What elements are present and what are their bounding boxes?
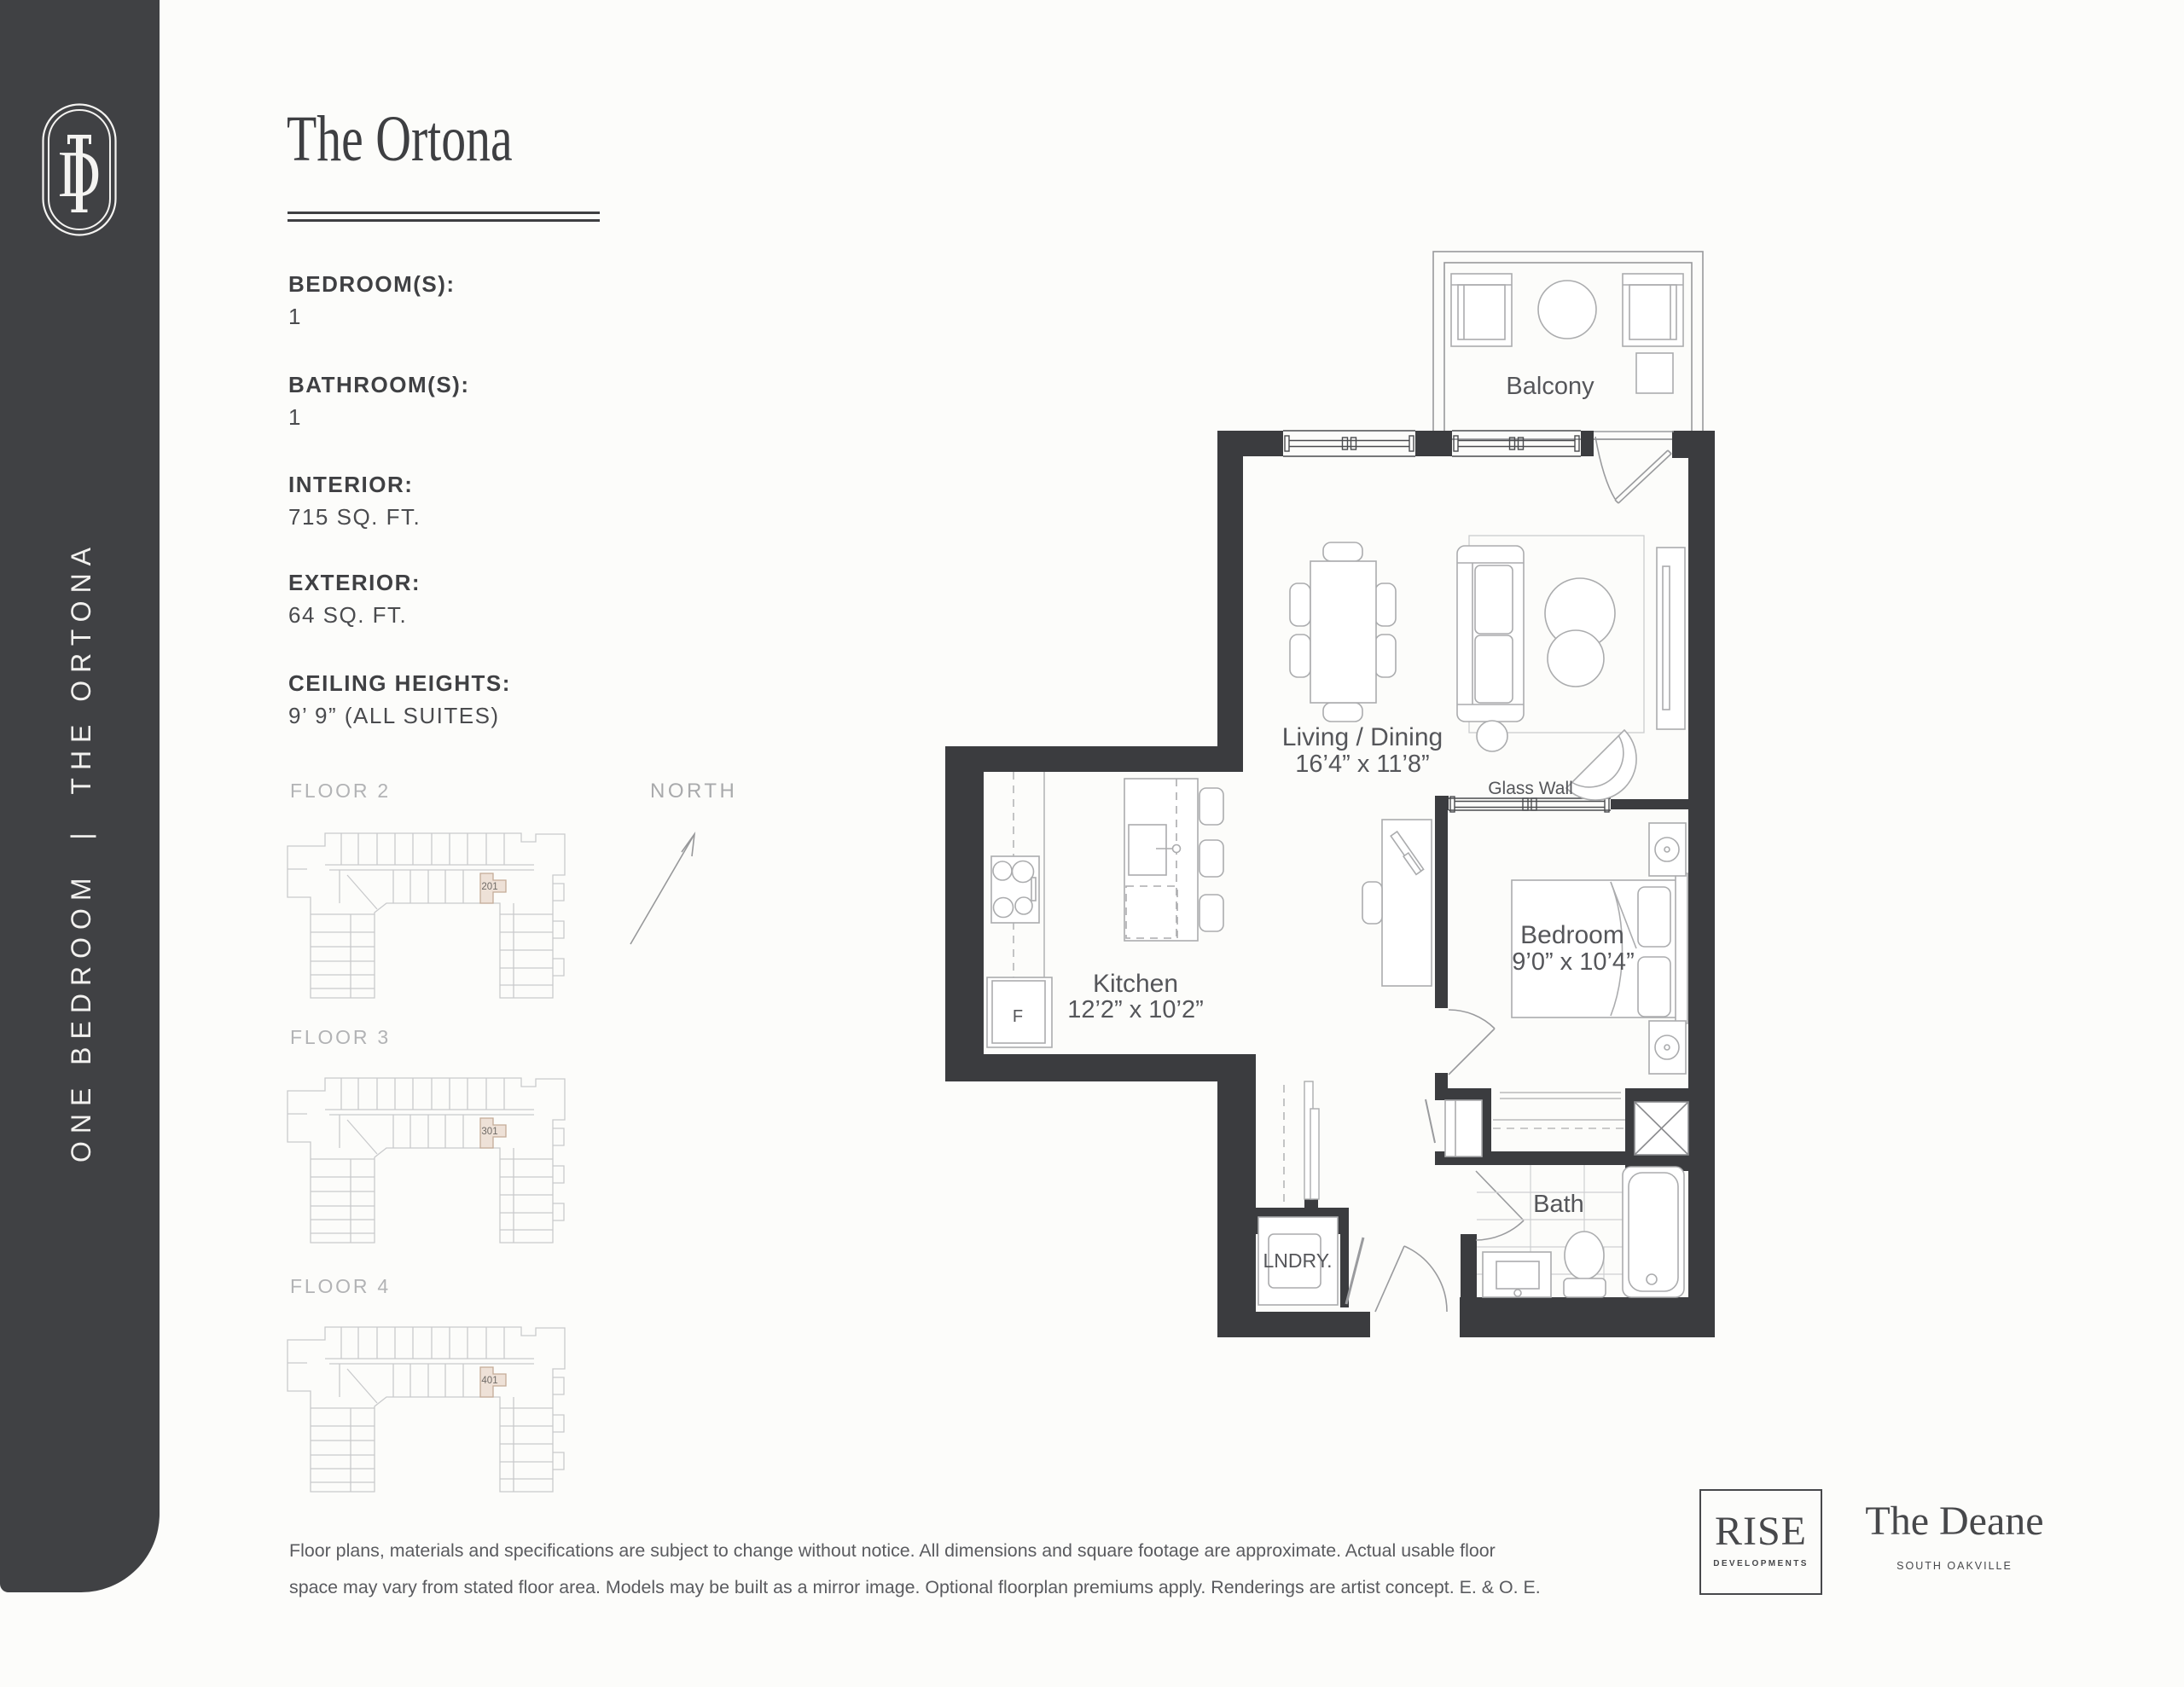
svg-text:201: 201 — [481, 882, 497, 892]
svg-text:12’2” x 10’2”: 12’2” x 10’2” — [1067, 996, 1204, 1023]
svg-text:Bath: Bath — [1533, 1191, 1584, 1218]
svg-text:Kitchen: Kitchen — [1093, 970, 1178, 998]
svg-text:D: D — [58, 137, 101, 211]
svg-text:LNDRY.: LNDRY. — [1263, 1249, 1333, 1272]
svg-text:F: F — [1013, 1007, 1023, 1026]
svg-text:9’0” x 10’4”: 9’0” x 10’4” — [1512, 948, 1634, 976]
svg-text:Living / Dining: Living / Dining — [1282, 723, 1443, 751]
svg-text:Glass Wall: Glass Wall — [1488, 779, 1573, 798]
svg-text:401: 401 — [481, 1376, 497, 1386]
svg-text:Balcony: Balcony — [1506, 373, 1594, 400]
svg-text:16’4” x 11’8”: 16’4” x 11’8” — [1295, 751, 1429, 778]
svg-text:301: 301 — [481, 1127, 497, 1137]
svg-text:Bedroom: Bedroom — [1520, 921, 1624, 949]
